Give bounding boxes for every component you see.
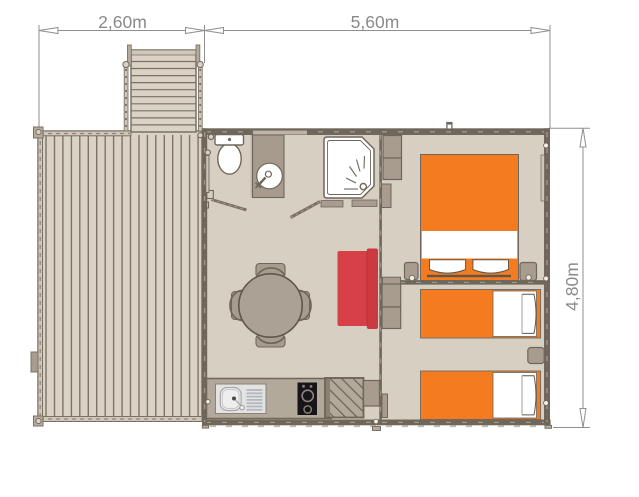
svg-text:4,80m: 4,80m (562, 262, 582, 311)
svg-text:5,60m: 5,60m (351, 12, 400, 32)
svg-text:2,60m: 2,60m (98, 12, 147, 32)
